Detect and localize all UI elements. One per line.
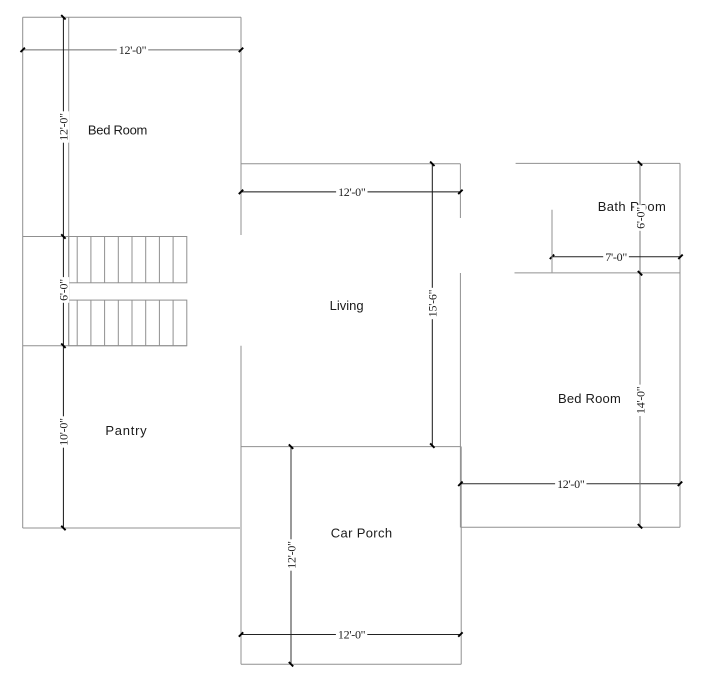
svg-text:Car Porch: Car Porch [331,526,393,541]
svg-text:Bath Room: Bath Room [598,199,667,214]
svg-text:Pantry: Pantry [105,423,147,438]
svg-text:12'-0": 12'-0" [119,43,147,57]
svg-text:Bed Room: Bed Room [558,391,621,406]
svg-text:12'-0": 12'-0" [557,477,585,491]
svg-text:12'-0": 12'-0" [338,185,366,199]
svg-text:12'-0": 12'-0" [338,628,366,642]
svg-text:6'-0": 6'-0" [57,279,71,301]
svg-text:10'-0": 10'-0" [57,418,71,446]
svg-text:Bed Room: Bed Room [88,123,147,138]
svg-text:14'-0": 14'-0" [633,386,647,414]
svg-text:15'-6": 15'-6" [426,289,440,317]
svg-text:12'-0": 12'-0" [284,541,298,569]
svg-text:7'-0": 7'-0" [605,250,627,264]
svg-text:12'-0": 12'-0" [57,113,71,141]
svg-text:Living: Living [330,298,364,313]
svg-text:6'-0": 6'-0" [633,207,647,229]
